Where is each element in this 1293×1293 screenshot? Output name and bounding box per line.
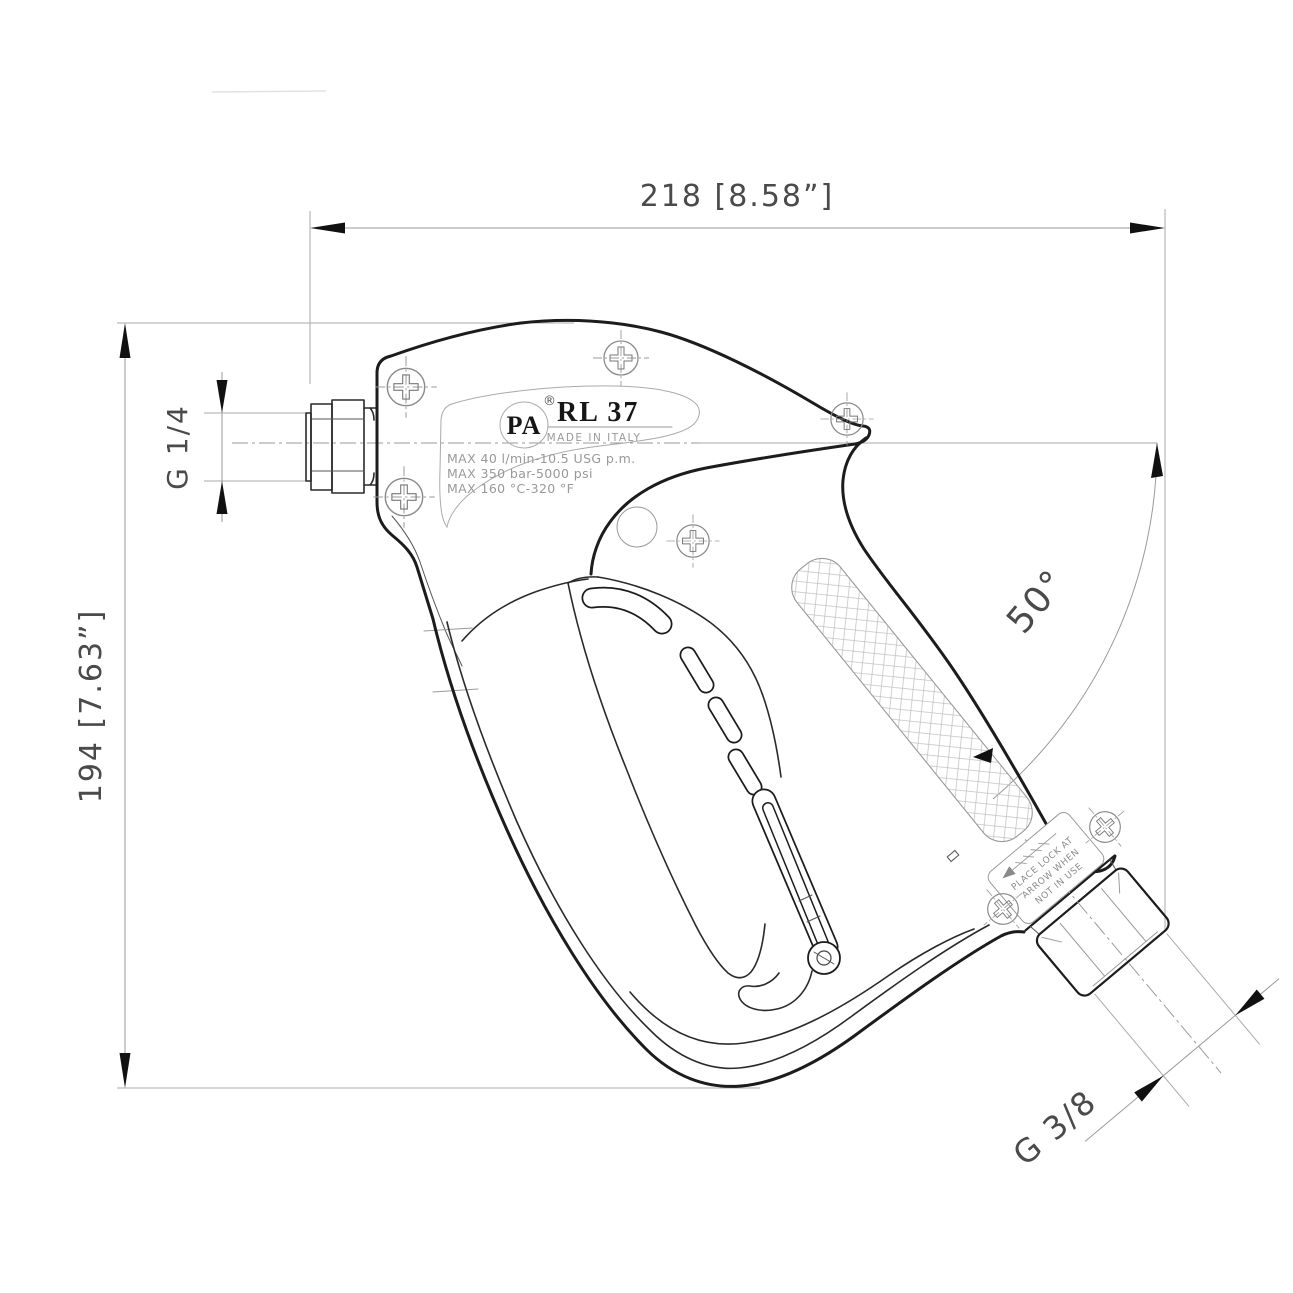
outlet-arrow-upper [1231, 990, 1264, 1020]
safety-hook [739, 971, 812, 1010]
width-dimension-text: 218 [8.58”] [640, 179, 835, 214]
trigger-slot-2 [716, 705, 734, 735]
grip-notch [947, 850, 959, 861]
made-in-text: MADE IN ITALY [547, 432, 642, 444]
screw-center [666, 514, 719, 567]
screw-top-left [375, 356, 437, 418]
trigger-slot-1 [688, 655, 706, 685]
front-strut-inner-line [392, 516, 462, 666]
screw-top-middle [593, 330, 649, 386]
technical-drawing-page: 218 [8.58”] 194 [7.63”] G 1/4 50° [0, 0, 1293, 1293]
grip-pad-hatch [782, 549, 1042, 852]
dimension-overall-width: 218 [8.58”] [310, 179, 1165, 930]
inlet-groove [364, 408, 377, 485]
width-arrow-right [1130, 223, 1165, 234]
scan-artifact [212, 91, 326, 92]
latch-bar [768, 808, 823, 943]
dimension-outlet-angle: 50° [993, 443, 1163, 799]
inlet-hex [332, 400, 364, 493]
inlet-arrow-bottom [217, 481, 228, 514]
spec-line-1: MAX 40 l/min-10.5 USG p.m. [447, 451, 636, 466]
inlet-arrow-top [217, 380, 228, 413]
inlet-fitting [306, 400, 377, 493]
nut-flat-bottom [1060, 923, 1104, 976]
registered-mark: ® [543, 394, 556, 409]
spec-line-2: MAX 350 bar-5000 psi [447, 466, 593, 481]
spec-line-3: MAX 160 °C-320 °F [447, 481, 574, 496]
height-arrow-bottom [120, 1053, 131, 1088]
grip-pad [782, 549, 1042, 852]
inlet-thread-text: G 1/4 [161, 404, 194, 490]
trigger [568, 577, 840, 1011]
trigger-slot-3 [736, 757, 754, 787]
height-arrow-top [120, 323, 131, 358]
screw-bottom-left [373, 466, 435, 528]
outlet-angle-text: 50° [999, 562, 1075, 642]
inlet-cap [311, 404, 332, 490]
angle-arrow [1151, 443, 1163, 478]
model-text: RL 37 [557, 397, 639, 428]
outlet-thread-text: G 3/8 [1006, 1082, 1104, 1173]
pa-logo-text: PA [507, 411, 542, 440]
spray-gun-drawing: 218 [8.58”] 194 [7.63”] G 1/4 50° [0, 0, 1293, 1293]
outlet-extension-upper [1167, 933, 1260, 1044]
width-arrow-left [310, 223, 345, 234]
nut-flat-top [1102, 889, 1146, 942]
strut-tick-2 [433, 689, 478, 692]
outlet-arrow-lower [1134, 1071, 1167, 1101]
dimension-inlet-thread: G 1/4 [161, 372, 306, 522]
height-dimension-text: 194 [7.63”] [74, 609, 109, 804]
plug-circle [617, 507, 657, 547]
nameplate: PA ® RL 37 MADE IN ITALY MAX 40 l/min-10… [440, 386, 700, 527]
trigger-front-edge [568, 583, 765, 978]
